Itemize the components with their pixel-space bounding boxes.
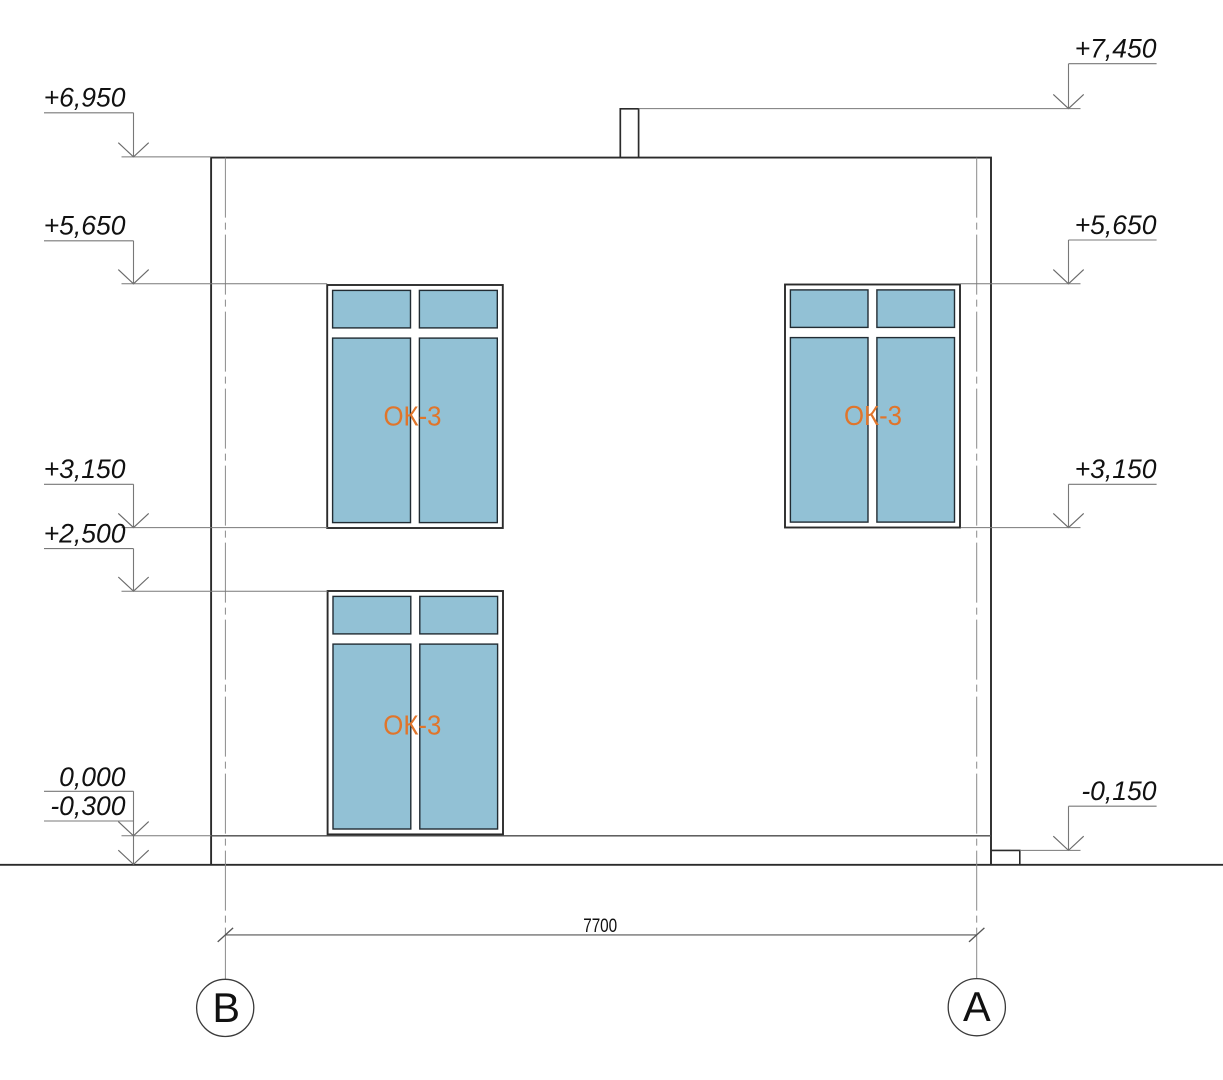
svg-text:ОК-3: ОК-3 bbox=[383, 710, 441, 741]
svg-text:+5,650: +5,650 bbox=[1075, 210, 1157, 240]
svg-text:-0,150: -0,150 bbox=[1081, 776, 1156, 806]
svg-text:ОК-3: ОК-3 bbox=[844, 400, 902, 431]
svg-text:+5,650: +5,650 bbox=[44, 211, 126, 241]
svg-text:+3,150: +3,150 bbox=[44, 454, 126, 484]
svg-text:А: А bbox=[963, 983, 991, 1030]
svg-text:ОК-3: ОК-3 bbox=[384, 400, 442, 431]
svg-text:В: В bbox=[212, 984, 240, 1031]
svg-text:7700: 7700 bbox=[583, 915, 617, 937]
svg-text:0,000: 0,000 bbox=[59, 762, 126, 792]
svg-text:+6,950: +6,950 bbox=[44, 83, 126, 113]
svg-text:+7,450: +7,450 bbox=[1075, 34, 1157, 64]
svg-text:+2,500: +2,500 bbox=[44, 518, 126, 548]
svg-text:-0,300: -0,300 bbox=[50, 791, 125, 821]
svg-text:+3,150: +3,150 bbox=[1075, 454, 1157, 484]
